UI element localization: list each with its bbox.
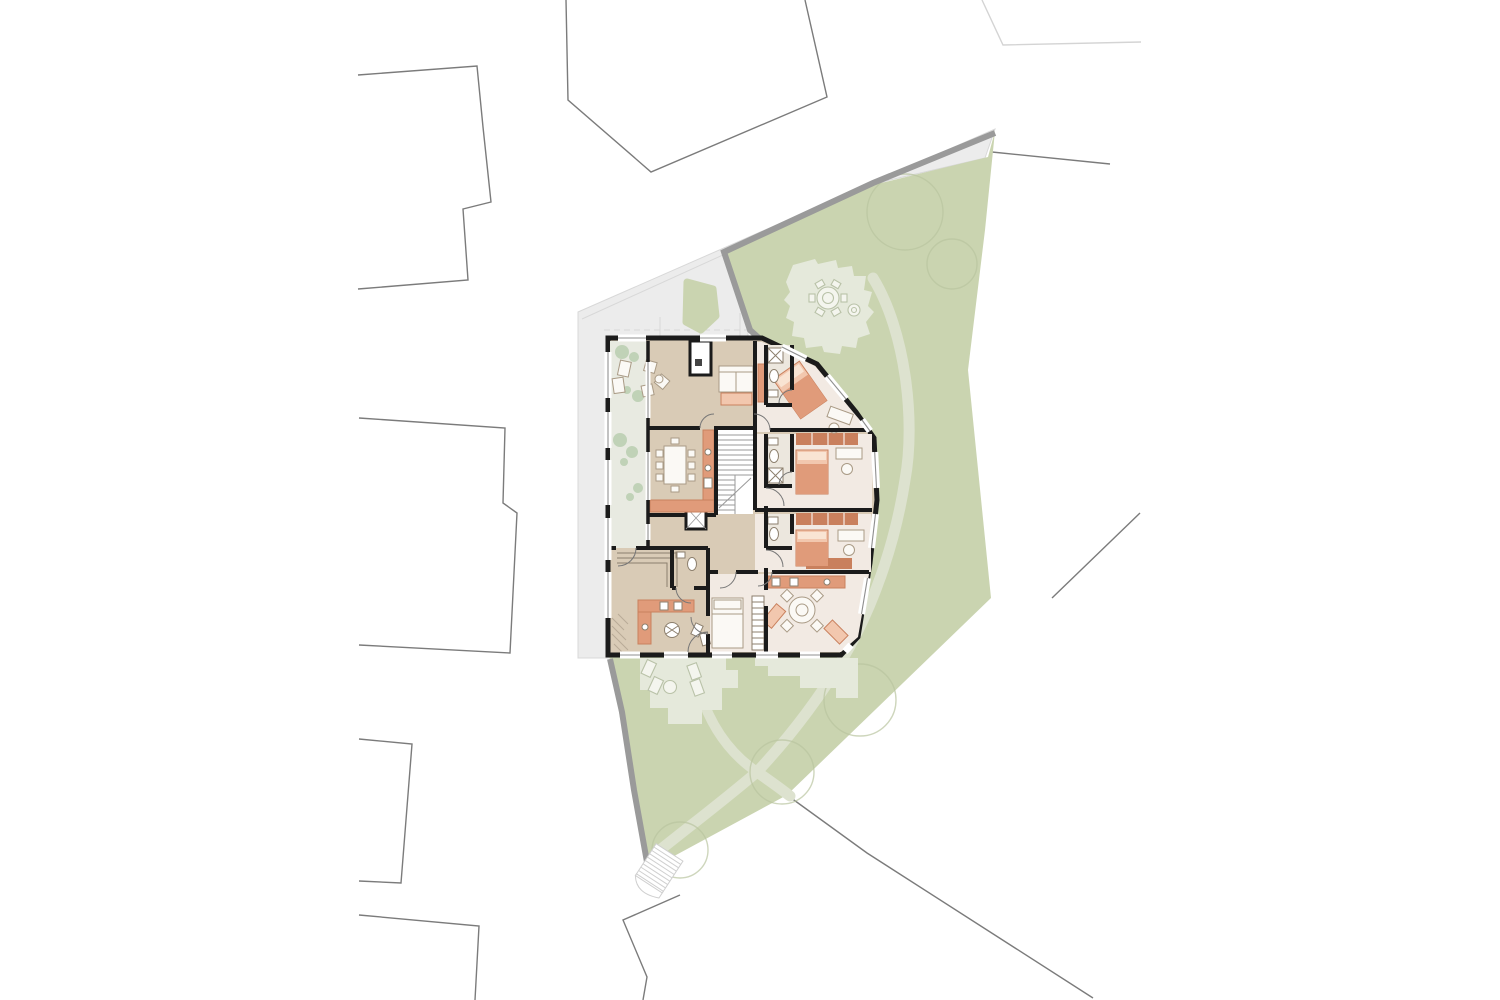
toilet-northeast bbox=[770, 370, 779, 383]
dining-chair bbox=[688, 450, 695, 457]
terrace-lounger bbox=[617, 360, 631, 377]
plant bbox=[615, 345, 629, 359]
patio-chair bbox=[809, 294, 815, 302]
parcel-outline-top-center bbox=[566, 0, 827, 172]
wardrobe-bedroom-lower bbox=[796, 513, 858, 525]
dining-chair bbox=[671, 486, 679, 492]
terrace-lounger bbox=[612, 377, 625, 393]
parcel-outline-upper-left bbox=[358, 66, 491, 289]
sink-kitchen-southwest bbox=[642, 624, 648, 630]
toilet-wc bbox=[688, 558, 697, 571]
plant bbox=[629, 352, 639, 362]
toilet-east-lower bbox=[770, 528, 779, 541]
round-table-southeast bbox=[789, 597, 815, 623]
sink-east-upper bbox=[768, 438, 778, 445]
chaise-living-room bbox=[721, 393, 752, 405]
parcel-outline-bottom-center bbox=[623, 895, 680, 1000]
dining-table bbox=[664, 446, 686, 484]
toilet-east-upper bbox=[770, 450, 779, 463]
bed-east-lower bbox=[796, 530, 828, 566]
faint-building-outline-top-right bbox=[982, 0, 1141, 45]
site-plan-drawing bbox=[0, 0, 1500, 1000]
desk-chair-east-upper bbox=[842, 464, 853, 475]
appliance-southeast bbox=[772, 578, 780, 586]
dining-chair bbox=[656, 474, 663, 481]
chimney bbox=[690, 341, 711, 375]
desk-east-lower bbox=[838, 530, 864, 541]
dining-chair bbox=[671, 438, 679, 444]
patio-chair bbox=[841, 294, 847, 302]
dining-chair bbox=[656, 450, 663, 457]
parcel-line-bottom-right bbox=[787, 795, 1093, 998]
cooktop-southwest bbox=[660, 602, 668, 610]
patio-round-table bbox=[817, 287, 839, 309]
dining-chair bbox=[688, 462, 695, 469]
plant bbox=[620, 458, 628, 466]
desk-chair-east-lower bbox=[844, 545, 855, 556]
coffee-table bbox=[655, 375, 663, 383]
window-gap bbox=[845, 645, 851, 652]
building bbox=[608, 338, 877, 655]
parcel-outline-mid-left bbox=[359, 418, 517, 653]
kitchen-counter-dining-horizontal bbox=[650, 500, 714, 512]
patio-side-table bbox=[664, 681, 677, 694]
wardrobe-ladder-south bbox=[752, 596, 764, 650]
sink-northeast bbox=[768, 390, 778, 397]
chimney-flue bbox=[695, 359, 702, 366]
cooktop-dining-kitchen bbox=[704, 478, 712, 488]
sink-kitchen-dining bbox=[705, 465, 711, 471]
site-plan-canvas bbox=[0, 0, 1500, 1000]
bed-east-upper bbox=[796, 450, 828, 494]
dining-chair bbox=[688, 474, 695, 481]
appliance-southeast bbox=[790, 578, 798, 586]
bed-blanket bbox=[796, 542, 828, 566]
parcel-outline-lower-left-1 bbox=[359, 739, 412, 883]
sink-southeast bbox=[824, 579, 830, 585]
plant bbox=[626, 493, 634, 501]
appliance-southwest bbox=[674, 602, 682, 610]
wardrobe-bedroom-upper bbox=[796, 433, 858, 445]
desk-east-upper bbox=[836, 448, 862, 459]
bed-blanket bbox=[796, 464, 828, 494]
plant bbox=[613, 433, 627, 447]
patio-grill bbox=[848, 304, 860, 316]
sink-kitchen-dining bbox=[705, 449, 711, 455]
bed-pillow bbox=[798, 532, 826, 539]
sink-east-lower bbox=[768, 517, 778, 524]
bed-south-pillow bbox=[714, 600, 741, 609]
parcel-line-right-bottom bbox=[1052, 513, 1140, 598]
parcel-outline-lower-left-2 bbox=[359, 915, 479, 1000]
stair-core bbox=[717, 430, 753, 514]
dining-chair bbox=[656, 462, 663, 469]
plant bbox=[633, 483, 643, 493]
bed-pillow bbox=[798, 452, 826, 460]
plant bbox=[626, 446, 638, 458]
parcel-line-right bbox=[992, 152, 1110, 164]
garden-island bbox=[686, 282, 716, 330]
